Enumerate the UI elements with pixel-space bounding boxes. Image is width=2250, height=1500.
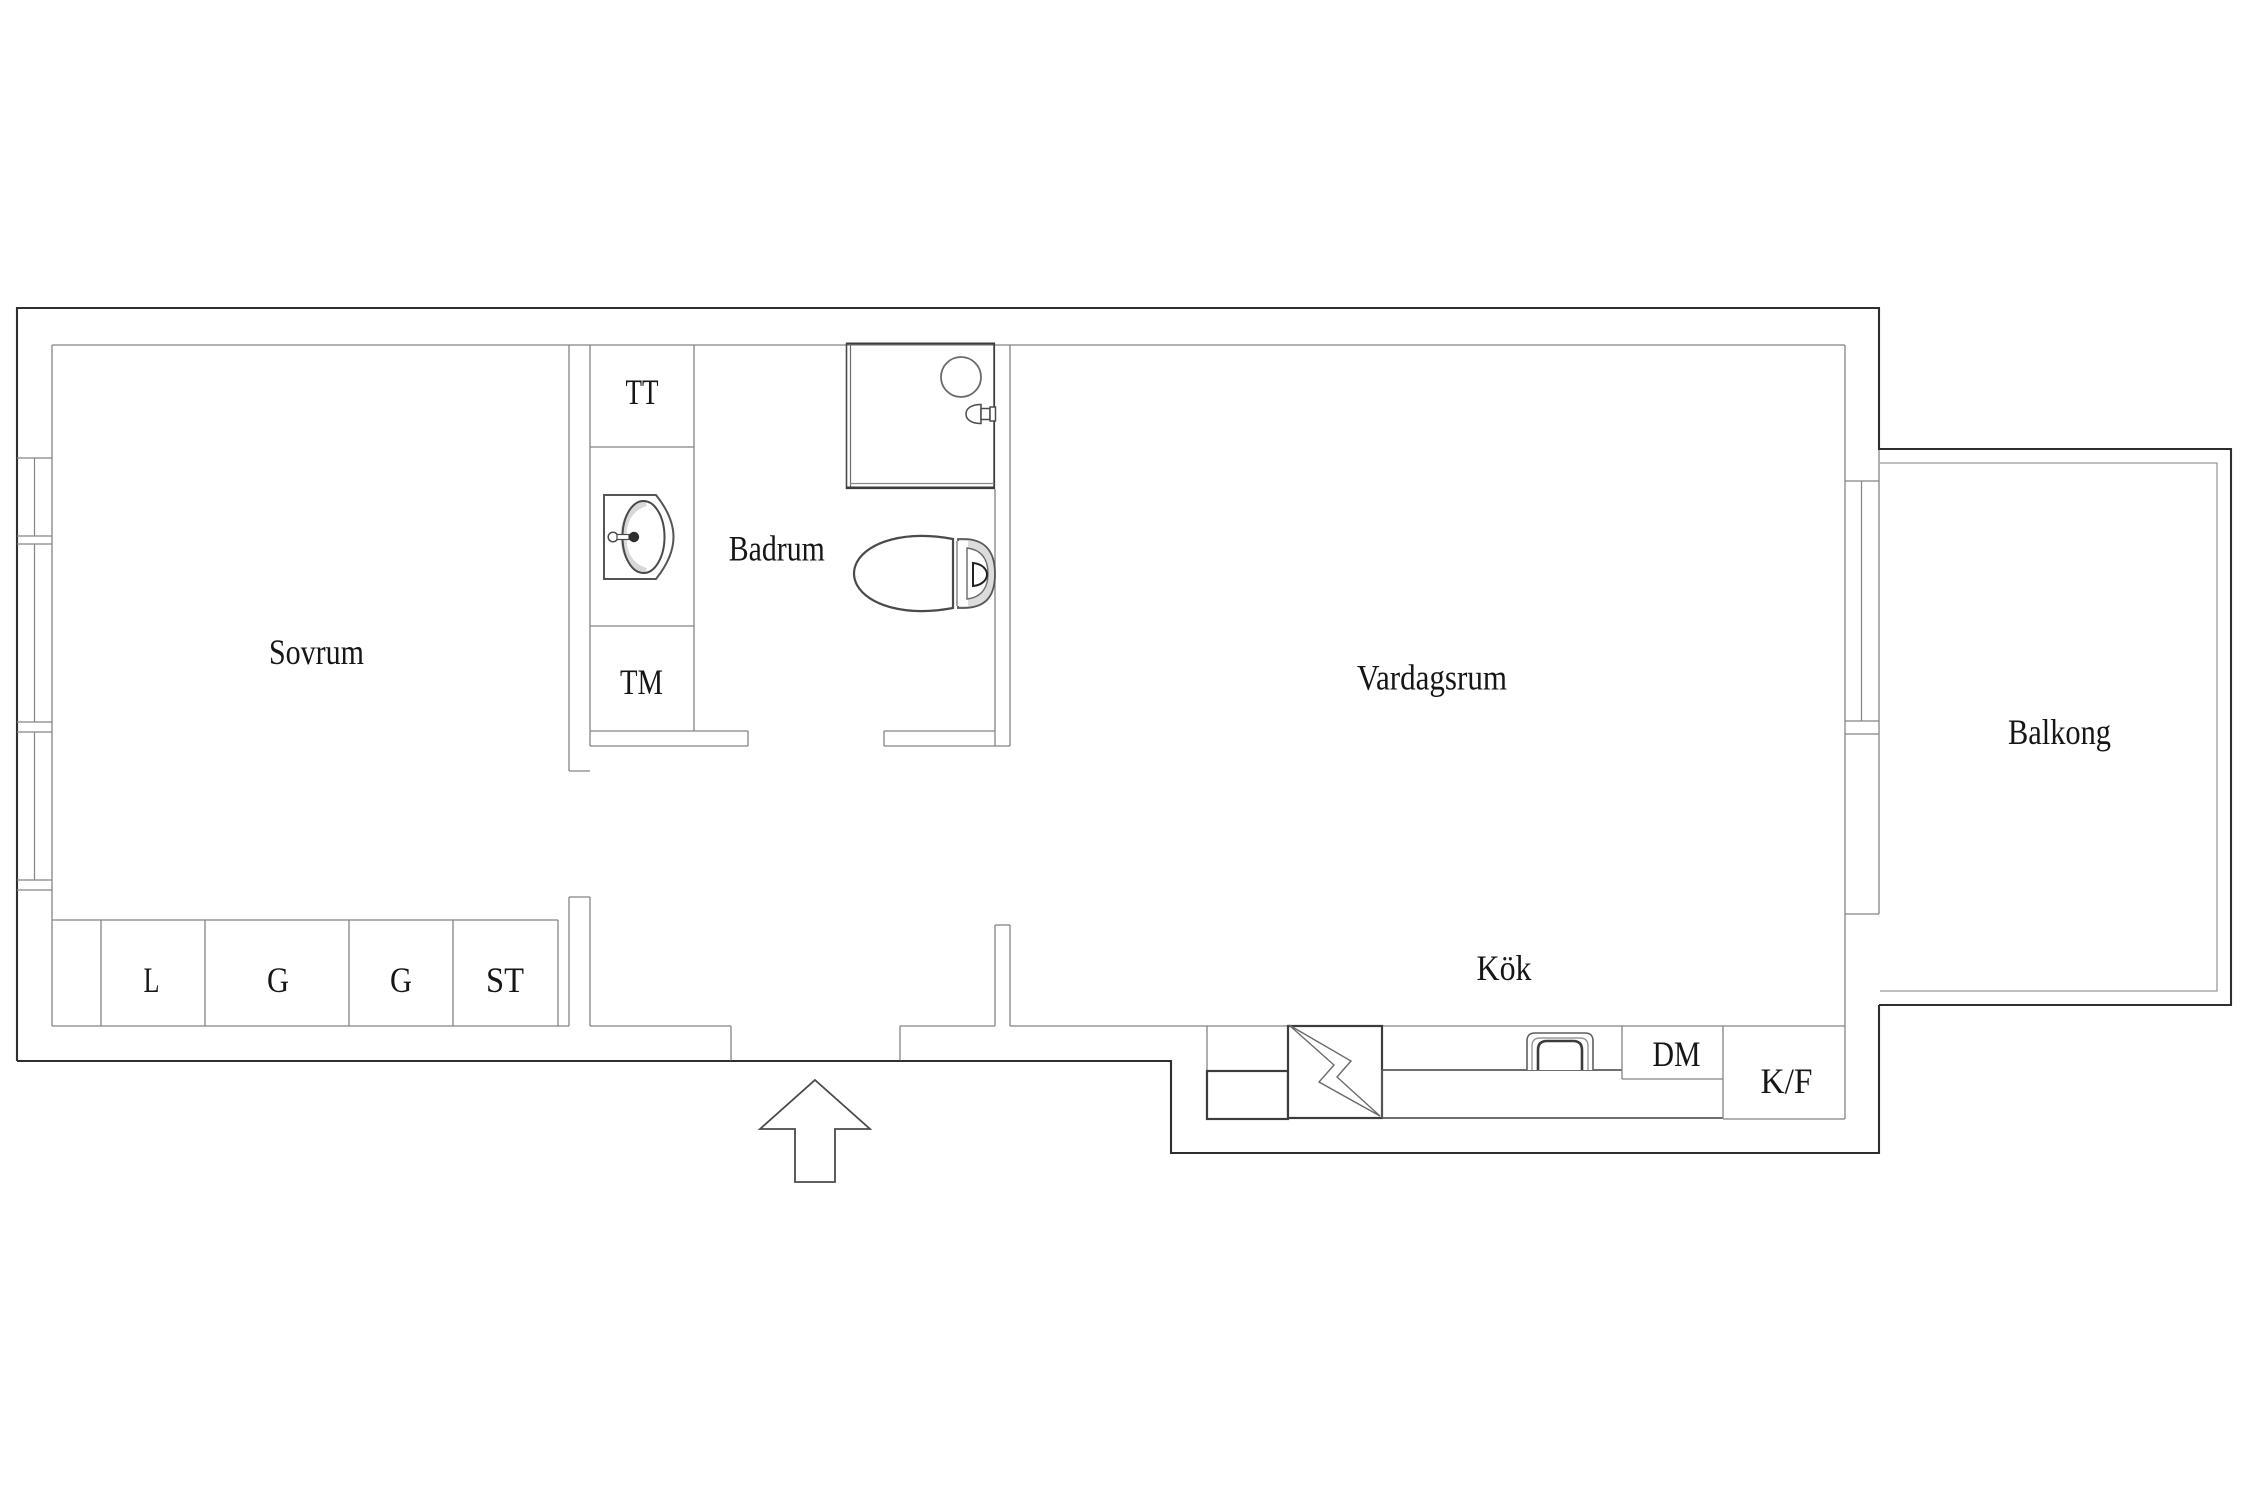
svg-text:Kök: Kök [1477,948,1532,988]
svg-text:G: G [390,960,412,1000]
svg-text:L: L [144,960,160,1000]
svg-text:Badrum: Badrum [729,529,825,569]
svg-text:TT: TT [626,372,659,412]
svg-text:TM: TM [620,662,663,702]
svg-text:Balkong: Balkong [2008,712,2111,752]
svg-text:G: G [267,960,289,1000]
svg-text:Sovrum: Sovrum [269,632,364,672]
svg-text:DM: DM [1653,1034,1701,1074]
svg-text:K/F: K/F [1761,1061,1813,1101]
svg-text:ST: ST [486,960,524,1000]
svg-text:Vardagsrum: Vardagsrum [1357,658,1507,698]
